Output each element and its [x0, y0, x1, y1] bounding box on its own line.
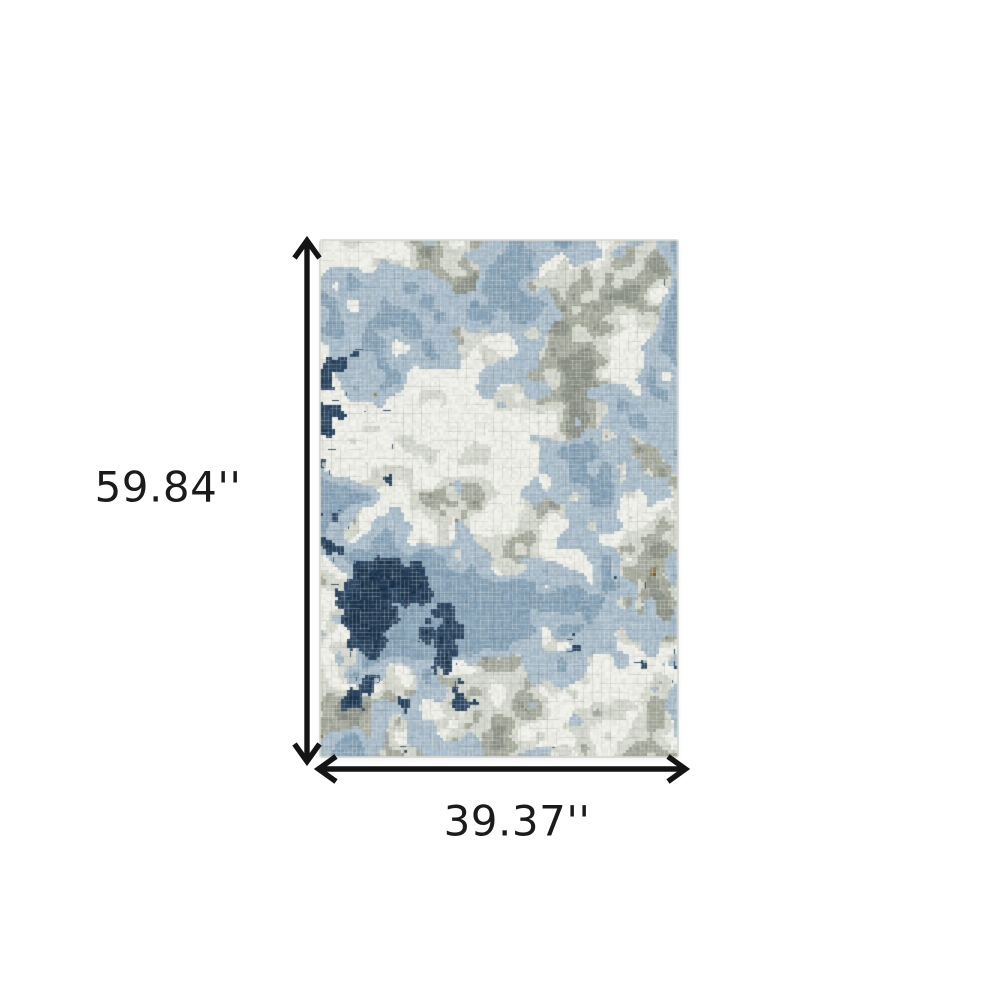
height-dimension-label: 59.84'' [95, 463, 242, 512]
height-arrow [295, 241, 320, 762]
width-arrow [319, 757, 686, 782]
product-dimension-image: 59.84'' 39.37'' [0, 0, 1000, 1000]
arrow-right-icon [668, 757, 686, 782]
arrow-up-icon [295, 241, 320, 259]
arrow-down-icon [295, 744, 320, 762]
arrow-left-icon [319, 757, 337, 782]
rug-image [320, 240, 678, 757]
width-dimension-label: 39.37'' [444, 797, 591, 846]
